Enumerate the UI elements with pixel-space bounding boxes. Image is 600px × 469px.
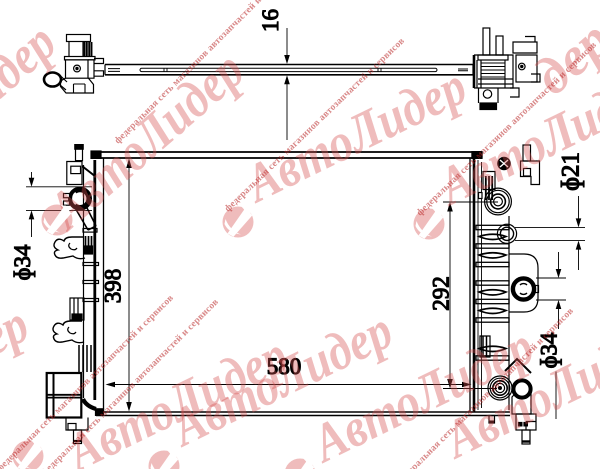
svg-text:292: 292	[429, 276, 454, 311]
svg-text:398: 398	[101, 269, 126, 304]
svg-text:ɸ34: ɸ34	[10, 244, 35, 280]
svg-text:16: 16	[258, 9, 283, 32]
